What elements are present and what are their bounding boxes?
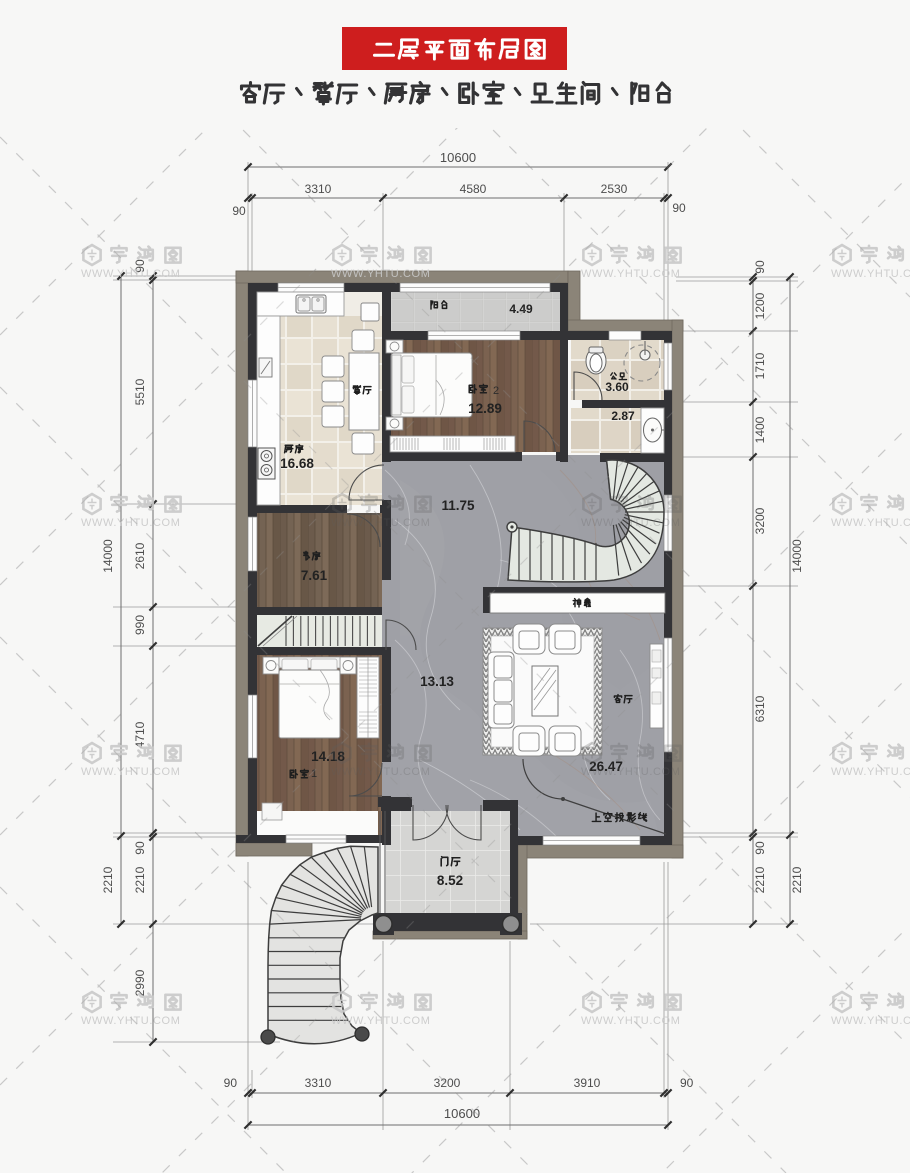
svg-text:16.68: 16.68 [280, 456, 314, 471]
svg-text:2210: 2210 [753, 866, 767, 893]
svg-text:90: 90 [224, 1076, 238, 1090]
svg-text:3310: 3310 [305, 1076, 332, 1090]
svg-text:3.60: 3.60 [605, 380, 629, 394]
svg-text:14000: 14000 [101, 539, 115, 573]
svg-text:WWW.YHTU.COM: WWW.YHTU.COM [831, 1015, 910, 1027]
svg-text:5510: 5510 [133, 378, 147, 405]
svg-text:2: 2 [493, 385, 499, 397]
svg-text:90: 90 [680, 1076, 694, 1090]
svg-text:90: 90 [753, 260, 767, 274]
svg-text:3310: 3310 [305, 182, 332, 196]
svg-text:3200: 3200 [434, 1076, 461, 1090]
svg-text:13.13: 13.13 [420, 674, 454, 689]
svg-text:4710: 4710 [133, 721, 147, 748]
svg-text:1710: 1710 [753, 352, 767, 379]
svg-text:11.75: 11.75 [441, 498, 475, 513]
svg-text:WWW.YHTU.COM: WWW.YHTU.COM [331, 517, 430, 529]
svg-text:1200: 1200 [753, 292, 767, 319]
svg-text:WWW.YHTU.COM: WWW.YHTU.COM [581, 1015, 680, 1027]
svg-text:90: 90 [672, 201, 686, 215]
svg-text:WWW.YHTU.COM: WWW.YHTU.COM [331, 268, 430, 280]
svg-text:3200: 3200 [753, 507, 767, 534]
svg-text:2.87: 2.87 [611, 409, 635, 423]
svg-text:2990: 2990 [133, 969, 147, 996]
svg-text:1: 1 [311, 768, 317, 780]
svg-text:12.89: 12.89 [468, 401, 502, 416]
svg-text:90: 90 [232, 204, 246, 218]
svg-text:WWW.YHTU.COM: WWW.YHTU.COM [581, 766, 680, 778]
svg-text:2210: 2210 [790, 866, 804, 893]
svg-text:4580: 4580 [460, 182, 487, 196]
svg-text:WWW.YHTU.COM: WWW.YHTU.COM [581, 517, 680, 529]
svg-text:WWW.YHTU.COM: WWW.YHTU.COM [831, 766, 910, 778]
svg-text:14000: 14000 [790, 539, 804, 573]
svg-text:10600: 10600 [444, 1106, 480, 1121]
svg-text:WWW.YHTU.COM: WWW.YHTU.COM [81, 268, 180, 280]
svg-text:2530: 2530 [601, 182, 628, 196]
svg-text:2610: 2610 [133, 542, 147, 569]
svg-text:WWW.YHTU.COM: WWW.YHTU.COM [81, 517, 180, 529]
svg-text:7.61: 7.61 [301, 568, 328, 583]
svg-text:2210: 2210 [101, 866, 115, 893]
svg-text:2210: 2210 [133, 866, 147, 893]
svg-text:WWW.YHTU.COM: WWW.YHTU.COM [581, 268, 680, 280]
svg-text:WWW.YHTU.COM: WWW.YHTU.COM [831, 517, 910, 529]
svg-text:3910: 3910 [574, 1076, 601, 1090]
svg-text:90: 90 [753, 841, 767, 855]
svg-text:6310: 6310 [753, 695, 767, 722]
svg-text:WWW.YHTU.COM: WWW.YHTU.COM [831, 268, 910, 280]
svg-text:990: 990 [133, 615, 147, 635]
svg-text:90: 90 [133, 841, 147, 855]
svg-text:WWW.YHTU.COM: WWW.YHTU.COM [81, 1015, 180, 1027]
svg-text:10600: 10600 [440, 150, 476, 165]
svg-text:1400: 1400 [753, 416, 767, 443]
svg-text:WWW.YHTU.COM: WWW.YHTU.COM [331, 1015, 430, 1027]
